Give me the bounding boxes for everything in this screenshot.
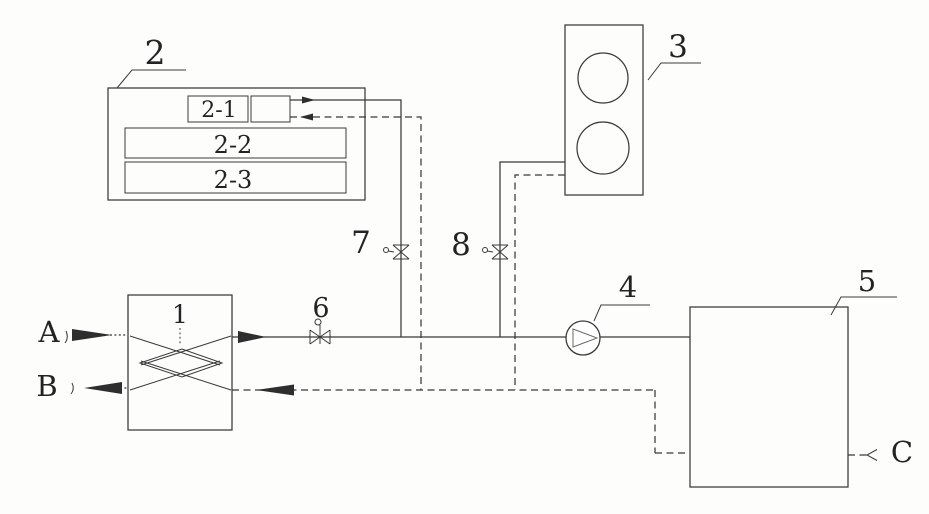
unit-2-3-label: 2-3 bbox=[214, 166, 253, 194]
label-b: B bbox=[36, 369, 57, 403]
valve-6: 6 bbox=[310, 293, 330, 344]
unit-3-return-branch bbox=[515, 175, 565, 390]
control-unit-2: 2-1 2-2 2-3 bbox=[108, 88, 365, 200]
unit-3-outline bbox=[565, 25, 643, 195]
port-b: B bbox=[36, 369, 128, 403]
piping-diagram: 2-1 2-2 2-3 2 3 1 A B bbox=[0, 0, 929, 514]
unit-2-1-box-right bbox=[251, 96, 290, 122]
heat-exchanger-1: 1 bbox=[128, 295, 232, 430]
crossed-flow-diamond-icon bbox=[130, 336, 231, 390]
port-a: A bbox=[38, 315, 128, 349]
return-flow-arrow-icon bbox=[256, 385, 294, 396]
label-5: 5 bbox=[858, 264, 876, 298]
schematic-page: 2-1 2-2 2-3 2 3 1 A B bbox=[0, 0, 929, 514]
branch-3-return-line bbox=[515, 175, 565, 390]
fan-circle-bottom bbox=[577, 122, 629, 174]
leader-3 bbox=[648, 63, 701, 80]
fan-circle-top bbox=[578, 53, 628, 103]
label-7: 7 bbox=[351, 225, 371, 261]
branch-2-return-arrow-icon bbox=[300, 114, 313, 121]
flow-arrow-a-icon bbox=[72, 329, 112, 341]
branch-2-supply-arrow-icon bbox=[302, 97, 315, 104]
tank-outline bbox=[690, 307, 848, 487]
label-c: C bbox=[891, 435, 913, 469]
label-1: 1 bbox=[172, 300, 188, 329]
label-3: 3 bbox=[668, 29, 688, 65]
unit-3-supply-branch bbox=[500, 162, 565, 337]
label-8: 8 bbox=[451, 227, 471, 263]
label-a: A bbox=[38, 315, 61, 349]
port-c-arrow-icon bbox=[867, 450, 877, 461]
leader-2 bbox=[117, 70, 186, 88]
supply-pipe bbox=[232, 331, 690, 343]
break-squiggle-a bbox=[65, 331, 67, 343]
circulation-pump-4: 4 bbox=[566, 270, 650, 355]
callout-3: 3 bbox=[648, 29, 701, 80]
port-c: C bbox=[848, 435, 913, 469]
leader-4 bbox=[594, 305, 650, 321]
bowtie-valve-icon bbox=[483, 245, 509, 259]
return-pipe bbox=[232, 385, 690, 454]
label-6: 6 bbox=[312, 293, 329, 324]
unit-2-1-label: 2-1 bbox=[201, 98, 236, 123]
callout-2: 2 bbox=[117, 33, 186, 88]
water-tank-5: 5 bbox=[690, 264, 897, 487]
bowtie-valve-icon bbox=[384, 245, 410, 259]
unit-2-2-label: 2-2 bbox=[214, 131, 253, 159]
branch-3-supply-line bbox=[500, 162, 565, 337]
label-2: 2 bbox=[145, 33, 166, 72]
valve-7: 7 bbox=[351, 225, 409, 261]
supply-flow-arrow-icon bbox=[238, 331, 266, 343]
leader-5 bbox=[831, 297, 897, 315]
break-squiggle-b bbox=[71, 383, 73, 394]
pump-circle-icon bbox=[566, 321, 600, 355]
flow-arrow-b-icon bbox=[84, 382, 122, 394]
outdoor-unit-3 bbox=[565, 25, 643, 195]
label-4: 4 bbox=[619, 270, 637, 304]
